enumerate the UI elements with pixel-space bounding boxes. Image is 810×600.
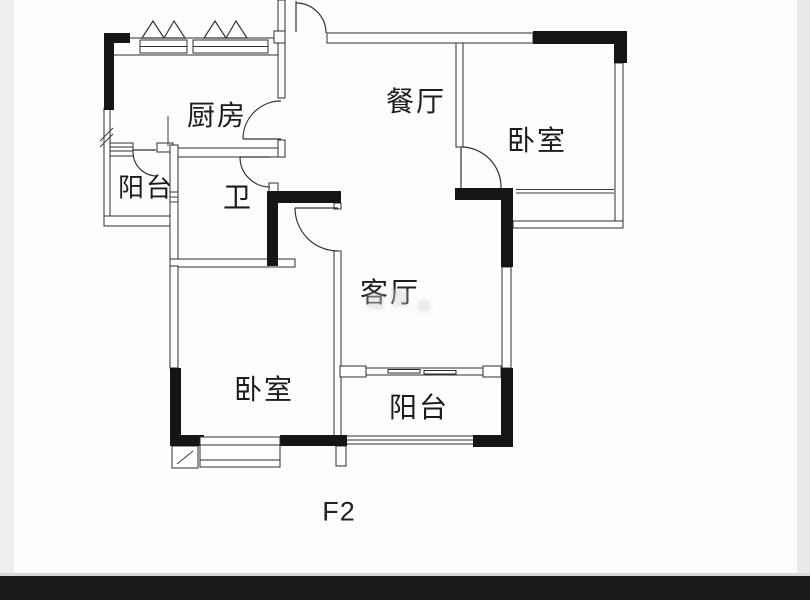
room-label-kitchen: 厨房	[187, 94, 247, 134]
room-label-balcony-left: 阳台	[118, 168, 174, 205]
walls-solid	[104, 31, 627, 447]
floor-label: F2	[322, 497, 356, 528]
room-label-bathroom: 卫	[223, 176, 253, 216]
bay-window-bedroom-left	[200, 437, 280, 467]
wardrobe-line-bedroom-right	[516, 190, 614, 194]
room-label-bedroom-left: 卧室	[234, 368, 294, 408]
balcony-left-window	[110, 143, 133, 156]
sliding-door-living-balcony	[366, 368, 483, 375]
room-label-dining: 餐厅	[386, 80, 446, 120]
casement-window-triangles-icon	[142, 21, 247, 38]
floor-plan-page: 厨房 餐厅 卧室 阳台 卫 客厅 卧室 阳台 F2	[0, 0, 810, 600]
room-label-bedroom-right: 卧室	[507, 119, 567, 159]
balcony-bottom-railing	[347, 436, 473, 444]
room-label-balcony-bottom: 阳台	[389, 386, 449, 426]
walls-thin	[104, 0, 623, 468]
bottom-dark-bar	[0, 576, 810, 600]
watermark	[365, 283, 455, 323]
kitchen-windows	[140, 40, 268, 53]
